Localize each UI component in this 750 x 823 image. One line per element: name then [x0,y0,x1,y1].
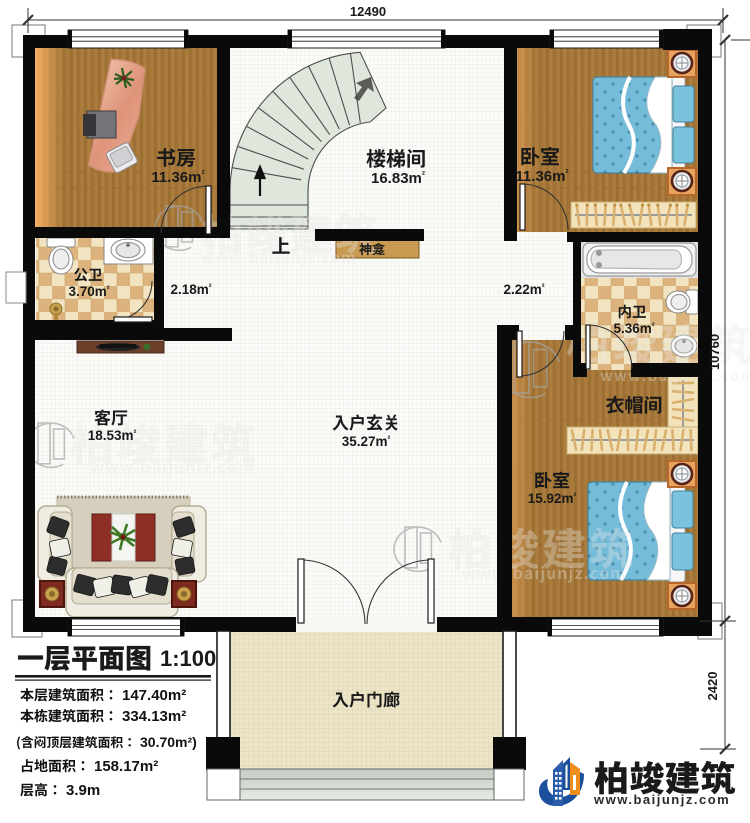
svg-text:3.9m: 3.9m [66,782,100,799]
svg-text:30.70m²): 30.70m²) [140,734,197,750]
svg-text:1:100: 1:100 [160,646,216,671]
svg-text:5.36m²: 5.36m² [613,321,654,336]
svg-text:18.53m²: 18.53m² [88,428,137,443]
svg-text:16.83m²: 16.83m² [371,170,425,187]
svg-text:12490: 12490 [350,4,386,19]
svg-text:10760: 10760 [707,334,722,370]
svg-text:334.13m²: 334.13m² [122,708,186,725]
svg-text:3.70m²: 3.70m² [68,284,109,299]
svg-text:15.92m²: 15.92m² [528,491,577,506]
svg-text:www.baijunjz.com: www.baijunjz.com [593,792,730,807]
svg-text:2420: 2420 [705,672,720,701]
svg-text:2.22m²: 2.22m² [503,282,544,297]
svg-text:147.40m²: 147.40m² [122,687,186,704]
svg-text:11.36m²: 11.36m² [151,169,204,186]
svg-text:11.36m²: 11.36m² [515,168,568,185]
svg-text:2.18m²: 2.18m² [170,282,211,297]
svg-text:158.17m²: 158.17m² [94,758,158,775]
svg-text:35.27m²: 35.27m² [342,434,391,449]
